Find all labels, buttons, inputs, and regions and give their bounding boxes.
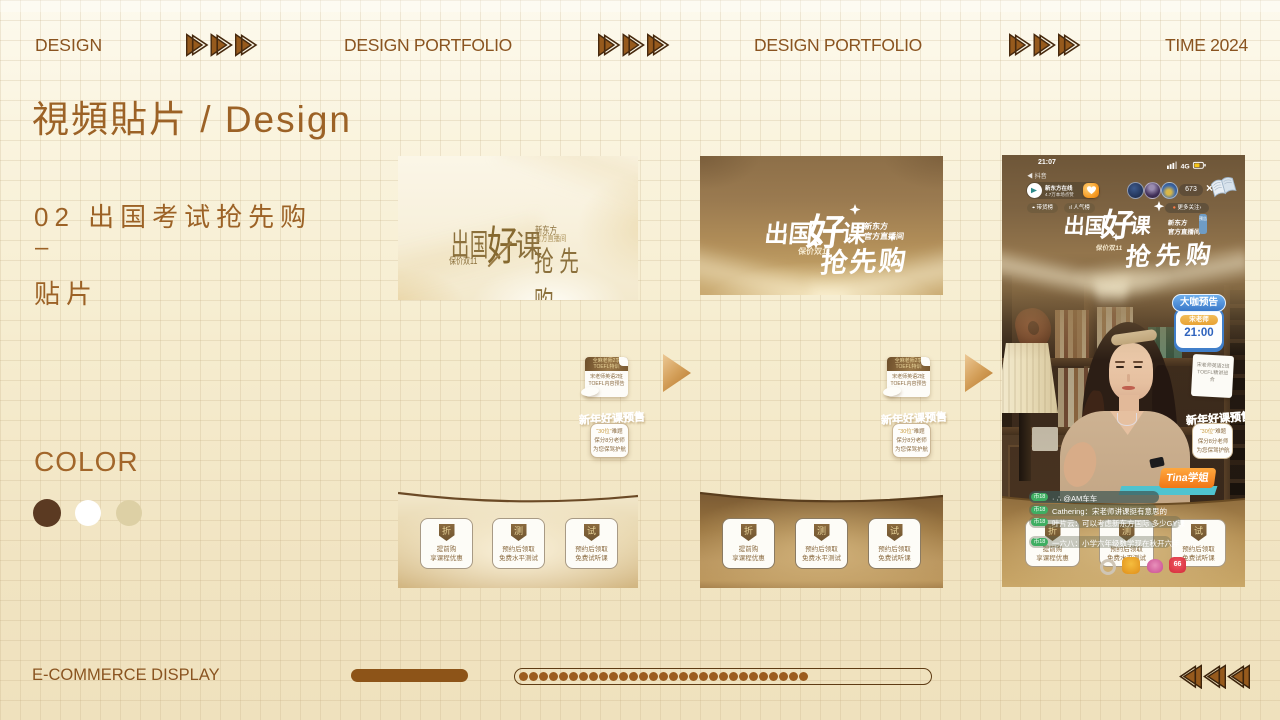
svg-text:4G: 4G — [1181, 163, 1190, 169]
